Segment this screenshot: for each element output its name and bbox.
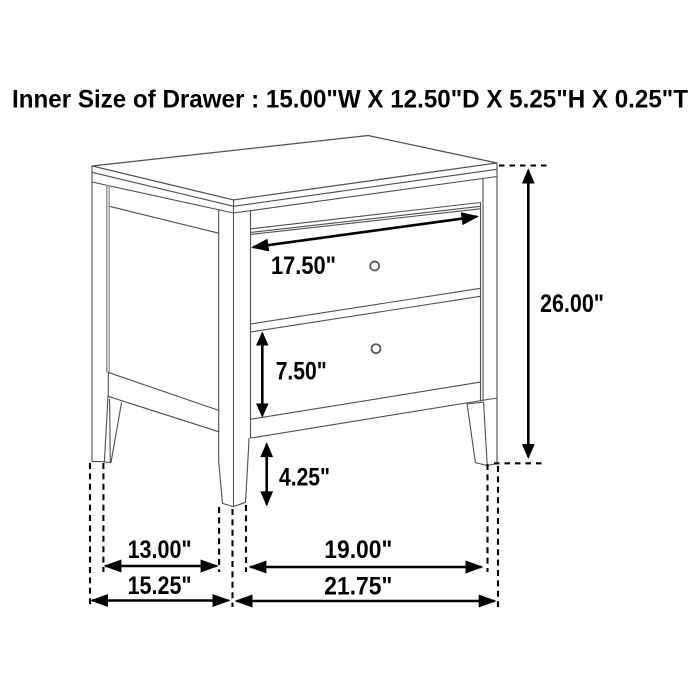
- svg-text:7.50": 7.50": [276, 358, 327, 386]
- svg-text:17.50": 17.50": [271, 252, 336, 280]
- svg-text:26.00": 26.00": [540, 290, 604, 318]
- svg-text:13.00": 13.00": [128, 536, 192, 564]
- svg-text:4.25": 4.25": [279, 464, 330, 492]
- svg-text:15.25": 15.25": [128, 572, 192, 600]
- svg-text:Inner Size of Drawer : 15.00"W: Inner Size of Drawer : 15.00"W X 12.50"D…: [12, 86, 688, 114]
- svg-text:21.75": 21.75": [324, 573, 392, 601]
- svg-text:19.00": 19.00": [324, 536, 392, 564]
